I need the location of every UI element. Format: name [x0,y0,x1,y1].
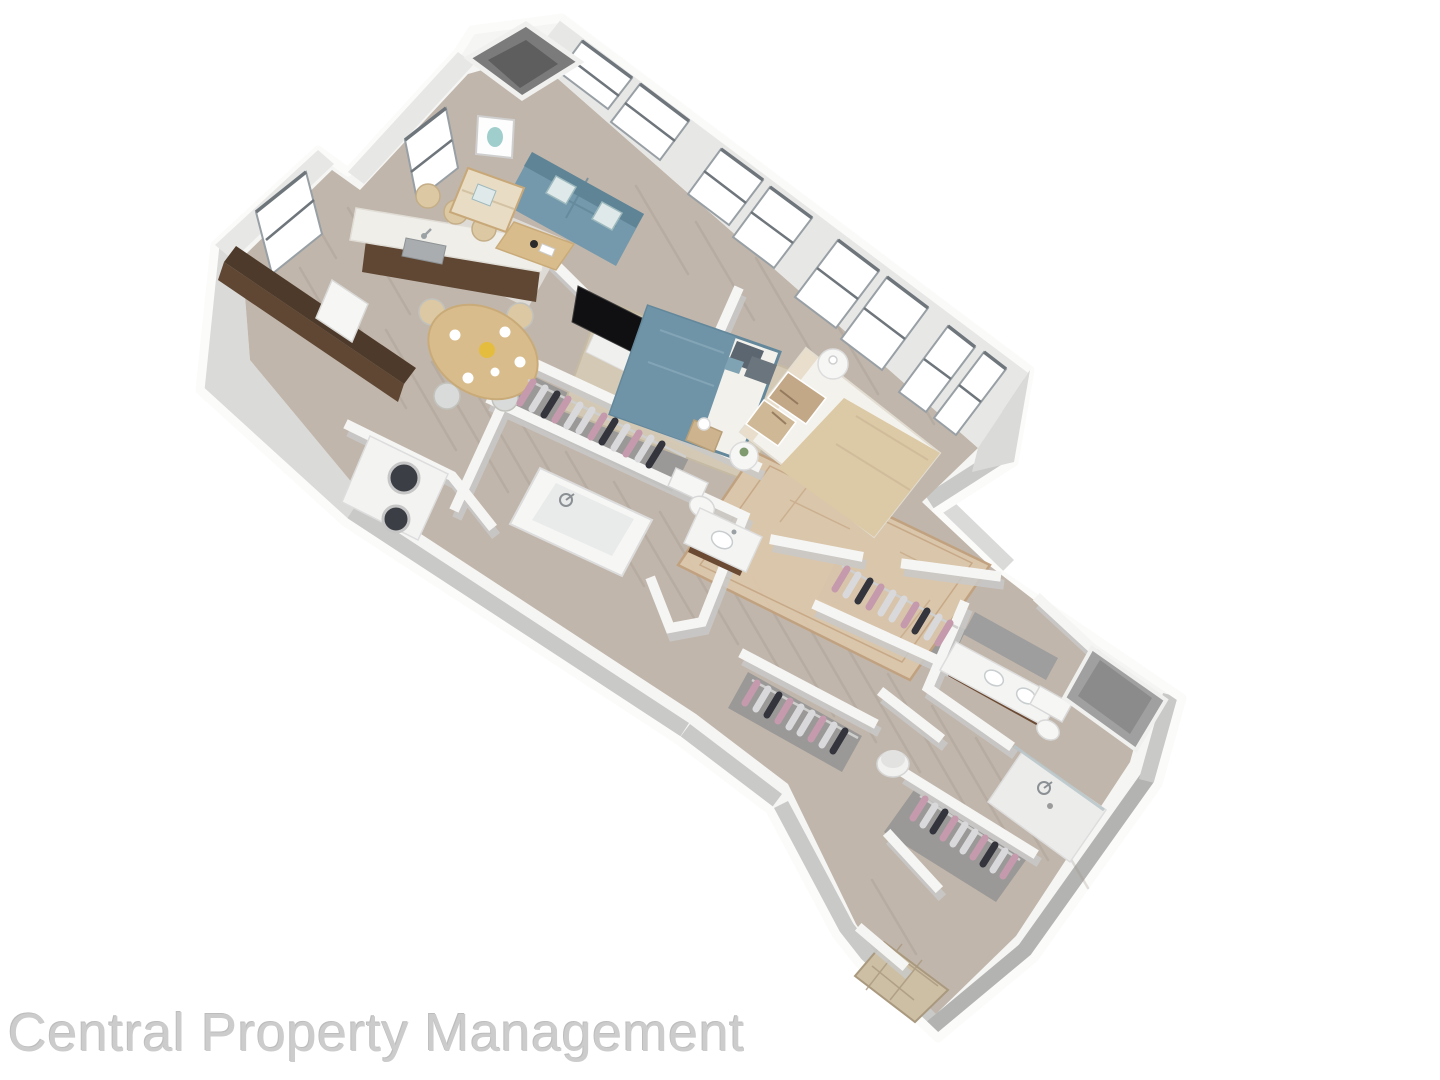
washer-door [389,463,419,493]
table-lamp [698,418,710,430]
round-hamper [877,750,909,777]
table-lamp [829,356,837,364]
plant [740,448,749,457]
watermark: Central Property Management [8,1002,745,1064]
round-side-table [818,349,848,379]
dryer-door [383,506,409,532]
round-side-table [730,442,758,470]
screenshot-root: Central Property Management [0,0,1440,1080]
shower-drain [1047,803,1053,809]
floor-plan-rendering [0,0,1440,1080]
wall-art [476,116,514,158]
